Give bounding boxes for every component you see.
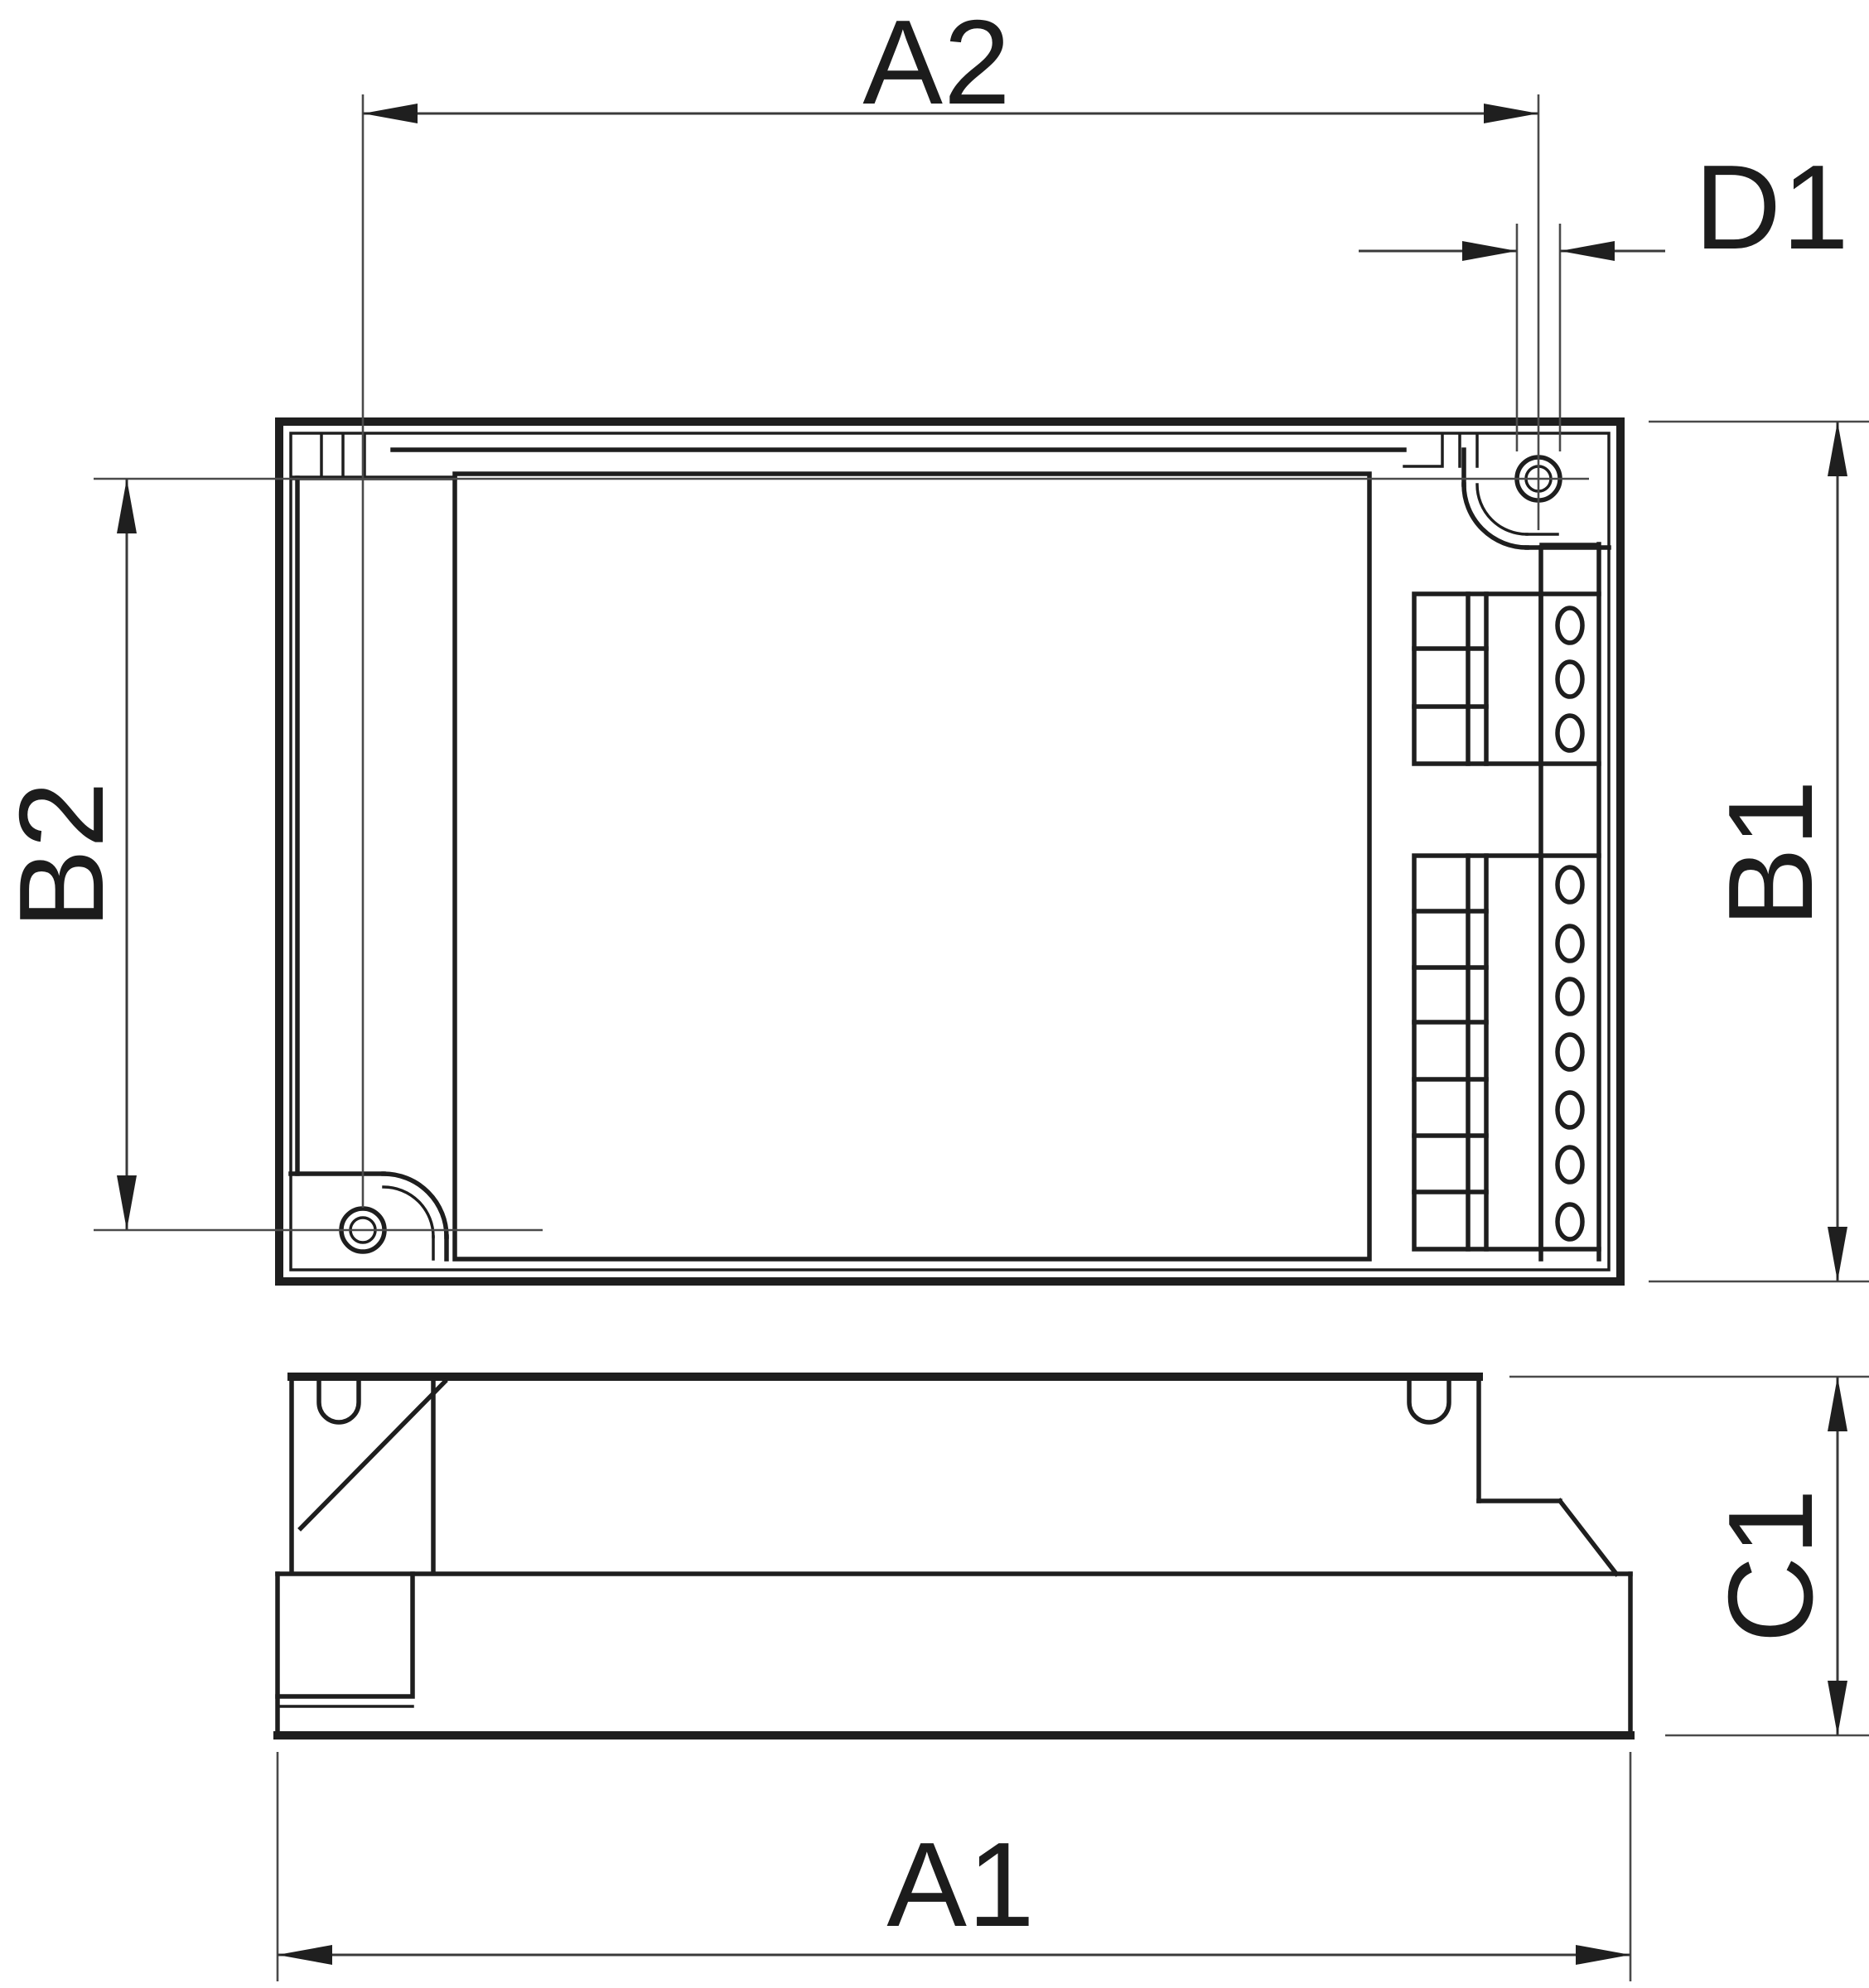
housing-outer-outline	[279, 422, 1620, 1281]
arrowhead-bottom	[1828, 1227, 1847, 1281]
snap-notch-right	[1409, 1377, 1449, 1422]
arrowhead-top	[117, 479, 137, 533]
terminal-block-lower	[1414, 856, 1582, 1249]
terminal-hole	[1557, 867, 1582, 902]
chamfer-right	[1560, 1501, 1616, 1574]
arrowhead-right	[1576, 1945, 1630, 1965]
chamfer-diagonal-left	[301, 1382, 445, 1528]
dimension-a1: A1	[278, 1752, 1630, 1981]
terminal-hole	[1557, 1035, 1582, 1069]
inner-panel-outline	[455, 474, 1369, 1259]
block-outline	[1414, 594, 1541, 764]
clamp-ticks-top-left	[321, 435, 365, 478]
dimension-b2: B2	[0, 479, 1589, 1230]
dim-label-a2: A2	[862, 0, 1011, 129]
boss-fillet-outer	[384, 1174, 447, 1237]
arrowhead-top	[1828, 422, 1847, 476]
dim-label-b1: B1	[1703, 779, 1838, 927]
terminal-hole	[1557, 1093, 1582, 1127]
arrowhead-bottom	[1828, 1681, 1847, 1735]
drawing-canvas: A2 D1 B2 B1	[0, 0, 1869, 1988]
dimension-b1: B1	[1649, 422, 1869, 1281]
mounting-boss-bottom-left	[291, 1174, 447, 1259]
side-view	[278, 1377, 1630, 1735]
housing-inner-wall	[291, 433, 1609, 1270]
terminal-hole	[1557, 608, 1582, 643]
terminal-hole	[1557, 1204, 1582, 1239]
arrowhead-left	[1462, 241, 1517, 261]
ballast-dimension-diagram: A2 D1 B2 B1	[0, 0, 1869, 1988]
terminal-hole	[1557, 926, 1582, 961]
dimension-c1: C1	[1509, 1377, 1869, 1735]
base-foot-step	[278, 1574, 413, 1696]
block-columns	[1468, 594, 1486, 764]
block-rows	[1414, 911, 1486, 1192]
arrowhead-right	[1560, 241, 1615, 261]
top-view	[279, 422, 1620, 1281]
block-rows	[1414, 649, 1486, 707]
dim-label-d1: D1	[1694, 140, 1849, 274]
terminal-hole	[1557, 662, 1582, 697]
arrowhead-top	[1828, 1377, 1847, 1431]
snap-notch-left	[319, 1377, 359, 1422]
arrowhead-left	[278, 1945, 332, 1965]
channel-dividers	[1541, 594, 1599, 1249]
clamp-ticks-top-right	[1404, 435, 1477, 466]
terminal-hole	[1557, 716, 1582, 750]
arrowhead-right	[1484, 104, 1538, 123]
dimension-a2: A2	[363, 0, 1538, 1208]
dimension-d1: D1	[1359, 140, 1850, 451]
terminal-block-upper	[1414, 594, 1582, 764]
dim-label-b2: B2	[0, 780, 128, 929]
arrowhead-left	[363, 104, 418, 123]
terminal-hole	[1557, 979, 1582, 1014]
dim-label-c1: C1	[1703, 1488, 1838, 1643]
boss-fillet-outer	[1464, 485, 1527, 548]
dim-label-a1: A1	[886, 1817, 1035, 1952]
terminal-hole	[1557, 1147, 1582, 1182]
arrowhead-bottom	[117, 1175, 137, 1230]
